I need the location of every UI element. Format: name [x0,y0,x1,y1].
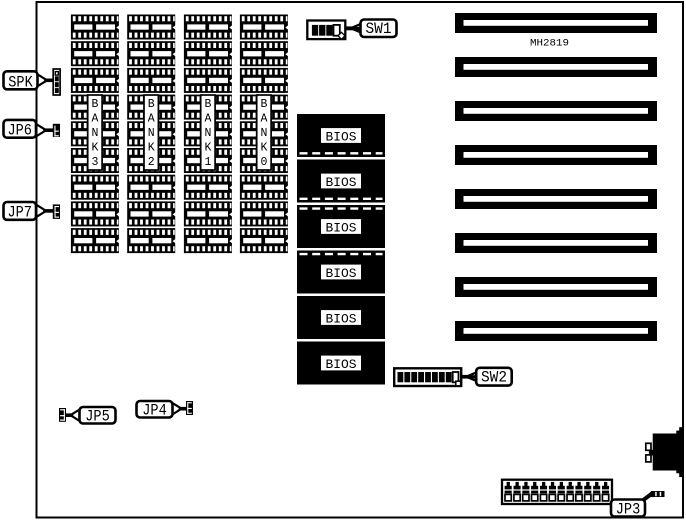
svg-text:N: N [91,127,98,140]
svg-text:0: 0 [260,156,267,169]
svg-text:K: K [148,142,155,155]
svg-text:N: N [260,127,267,140]
svg-text:BIOS: BIOS [326,175,357,190]
svg-text:N: N [148,127,155,140]
svg-text:JP3: JP3 [616,500,641,518]
svg-text:JP5: JP5 [85,408,110,426]
svg-text:1: 1 [204,156,211,169]
svg-text:JP7: JP7 [7,204,32,222]
svg-text:K: K [204,142,211,155]
svg-text:A: A [204,113,211,126]
svg-text:SPK: SPK [8,73,33,91]
svg-text:BIOS: BIOS [326,266,357,281]
svg-text:2: 2 [148,156,155,169]
svg-text:BIOS: BIOS [326,129,357,144]
svg-text:A: A [91,113,98,126]
svg-text:B: B [91,98,98,111]
svg-text:MH2819: MH2819 [530,39,569,50]
svg-text:A: A [260,113,267,126]
svg-text:JP6: JP6 [7,122,32,140]
svg-text:BIOS: BIOS [326,220,357,235]
svg-text:K: K [260,142,267,155]
svg-text:SW1: SW1 [366,20,392,38]
svg-text:K: K [91,142,98,155]
svg-text:A: A [148,113,155,126]
svg-text:JP4: JP4 [142,402,167,420]
svg-text:N: N [204,127,211,140]
svg-text:B: B [148,98,155,111]
svg-text:3: 3 [91,156,98,169]
svg-text:SW2: SW2 [481,369,507,387]
svg-text:BIOS: BIOS [326,311,357,326]
svg-text:BIOS: BIOS [326,357,357,372]
svg-text:B: B [260,98,267,111]
svg-text:B: B [204,98,211,111]
